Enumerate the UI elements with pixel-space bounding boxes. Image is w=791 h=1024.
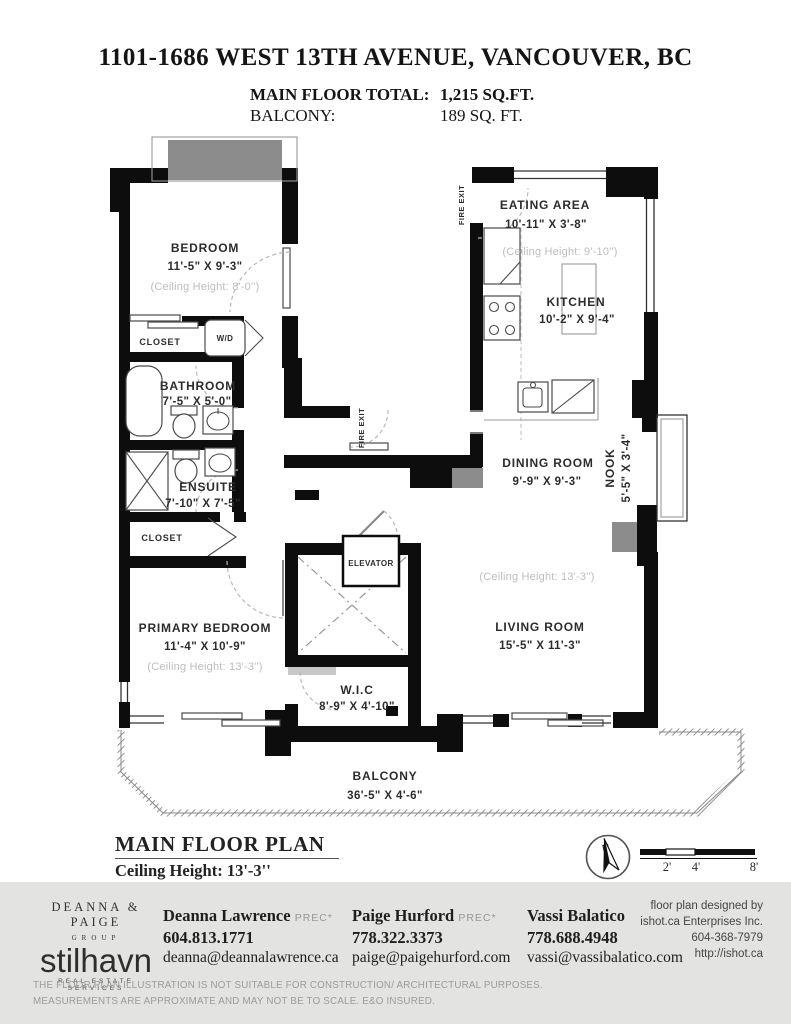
dining-room-label: DINING ROOM <box>502 456 593 470</box>
bathroom-dims: 7'-5" X 5'-0" <box>163 396 232 408</box>
dining-room-dims: 9'-9" X 9'-3" <box>513 476 582 488</box>
bathtub-icon <box>126 366 162 436</box>
living-room-ceiling: (Ceiling Height: 13'-3'') <box>479 571 594 583</box>
agent-designation: PREC* <box>458 912 496 924</box>
toilet-icon <box>173 450 199 459</box>
scale-tick-2: 2' <box>663 860 672 874</box>
fire-exit-hall-opening <box>470 410 483 434</box>
designer-phone: 604-368-7979 <box>640 930 763 946</box>
brand-group: GROUP <box>30 934 162 942</box>
primary-bedroom-label: PRIMARY BEDROOM <box>139 621 272 635</box>
bathroom-label: BATHROOM <box>160 379 236 393</box>
bedroom-label: BEDROOM <box>171 241 239 255</box>
fire-exit-label-mid: FIRE EXIT <box>357 408 366 448</box>
ensuite-dims: 7'-10" X 7'-5" <box>165 498 241 510</box>
bedroom-ceiling: (Ceiling Height: 8'-0'') <box>151 281 260 293</box>
primary-bedroom-ceiling: (Ceiling Height: 13'-3'') <box>147 661 262 673</box>
designer-line1: floor plan designed by <box>640 898 763 914</box>
primary-bedroom-dims: 11'-4" X 10'-9" <box>164 641 246 653</box>
ensuite-label: ENSUITE <box>179 480 237 494</box>
room-labels: BEDROOM 11'-5" X 9'-3" (Ceiling Height: … <box>139 185 633 802</box>
kitchen-dims: 10'-2" X 9'-4" <box>539 314 615 326</box>
agent-name: Vassi Balatico <box>527 906 625 925</box>
designer-credit: floor plan designed by ishot.ca Enterpri… <box>640 898 763 962</box>
scale-tick-4: 4' <box>692 860 701 874</box>
elevator-label: ELEVATOR <box>348 559 393 568</box>
disclaimer-line1: THE FLOOR PLAN ILLUSTRATION IS NOT SUITA… <box>33 978 543 994</box>
disclaimer: THE FLOOR PLAN ILLUSTRATION IS NOT SUITA… <box>33 978 543 1010</box>
nook-dims: 5'-5" X 3'-4" <box>621 434 633 503</box>
stove-icon <box>484 296 520 340</box>
agent-name: Paige Hurford <box>352 906 454 925</box>
living-room-dims: 15'-5" X 11'-3" <box>499 640 581 652</box>
eating-area-dims: 10'-11" X 3'-8" <box>505 219 587 231</box>
kitchen-label: KITCHEN <box>547 295 606 309</box>
designer-line2: ishot.ca Enterprises Inc. <box>640 914 763 930</box>
closet-label: CLOSET <box>139 337 180 347</box>
wd-label: W/D <box>217 334 234 343</box>
eating-area-ceiling: (Ceiling Height: 9'-10'') <box>502 246 617 258</box>
agent-card-paige: Paige Hurford PREC* 778.322.3373 paige@p… <box>352 906 510 968</box>
living-room-label: LIVING ROOM <box>495 620 584 634</box>
wic-dims: 8'-9" X 4'-10" <box>319 701 395 713</box>
brand-name: DEANNA & PAIGE <box>30 900 162 930</box>
agent-phone: 604.813.1771 <box>163 928 339 948</box>
floor-plan-page: 1101-1686 WEST 13TH AVENUE, VANCOUVER, B… <box>0 0 791 1024</box>
fire-exit-label-top: FIRE EXIT <box>457 185 466 225</box>
disclaimer-line2: MEASUREMENTS ARE APPROXIMATE AND MAY NOT… <box>33 994 543 1010</box>
agent-phone: 778.322.3373 <box>352 928 510 948</box>
balcony-label: BALCONY <box>353 769 418 783</box>
scale-bar: 2' 4' 8' <box>640 849 758 874</box>
balcony-railing <box>121 730 741 813</box>
plan-caption-subtitle: Ceiling Height: 13'-3'' <box>115 861 339 881</box>
closet2-label: CLOSET <box>141 533 182 543</box>
bedroom-dims: 11'-5" X 9'-3" <box>167 261 242 273</box>
agent-name: Deanna Lawrence <box>163 906 291 925</box>
eating-area-label: EATING AREA <box>500 198 590 212</box>
agent-email: paige@paigehurford.com <box>352 948 510 968</box>
plan-caption-title: MAIN FLOOR PLAN <box>115 832 339 859</box>
nook-label: NOOK <box>603 448 617 487</box>
scale-tick-8: 8' <box>750 860 759 874</box>
agent-card-deanna: Deanna Lawrence PREC* 604.813.1771 deann… <box>163 906 339 968</box>
balcony-dims: 36'-5" X 4'-6" <box>347 790 423 802</box>
wic-label: W.I.C <box>340 683 373 697</box>
brand-wordmark: stilhavn <box>30 944 162 978</box>
compass-icon: N <box>587 836 630 879</box>
plan-caption: MAIN FLOOR PLAN Ceiling Height: 13'-3'' <box>115 832 339 881</box>
designer-url: http://ishot.ca <box>640 946 763 962</box>
footer: DEANNA & PAIGE GROUP stilhavn REAL ESTAT… <box>0 882 791 1024</box>
agent-email: deanna@deannalawrence.ca <box>163 948 339 968</box>
agent-designation: PREC* <box>295 912 333 924</box>
